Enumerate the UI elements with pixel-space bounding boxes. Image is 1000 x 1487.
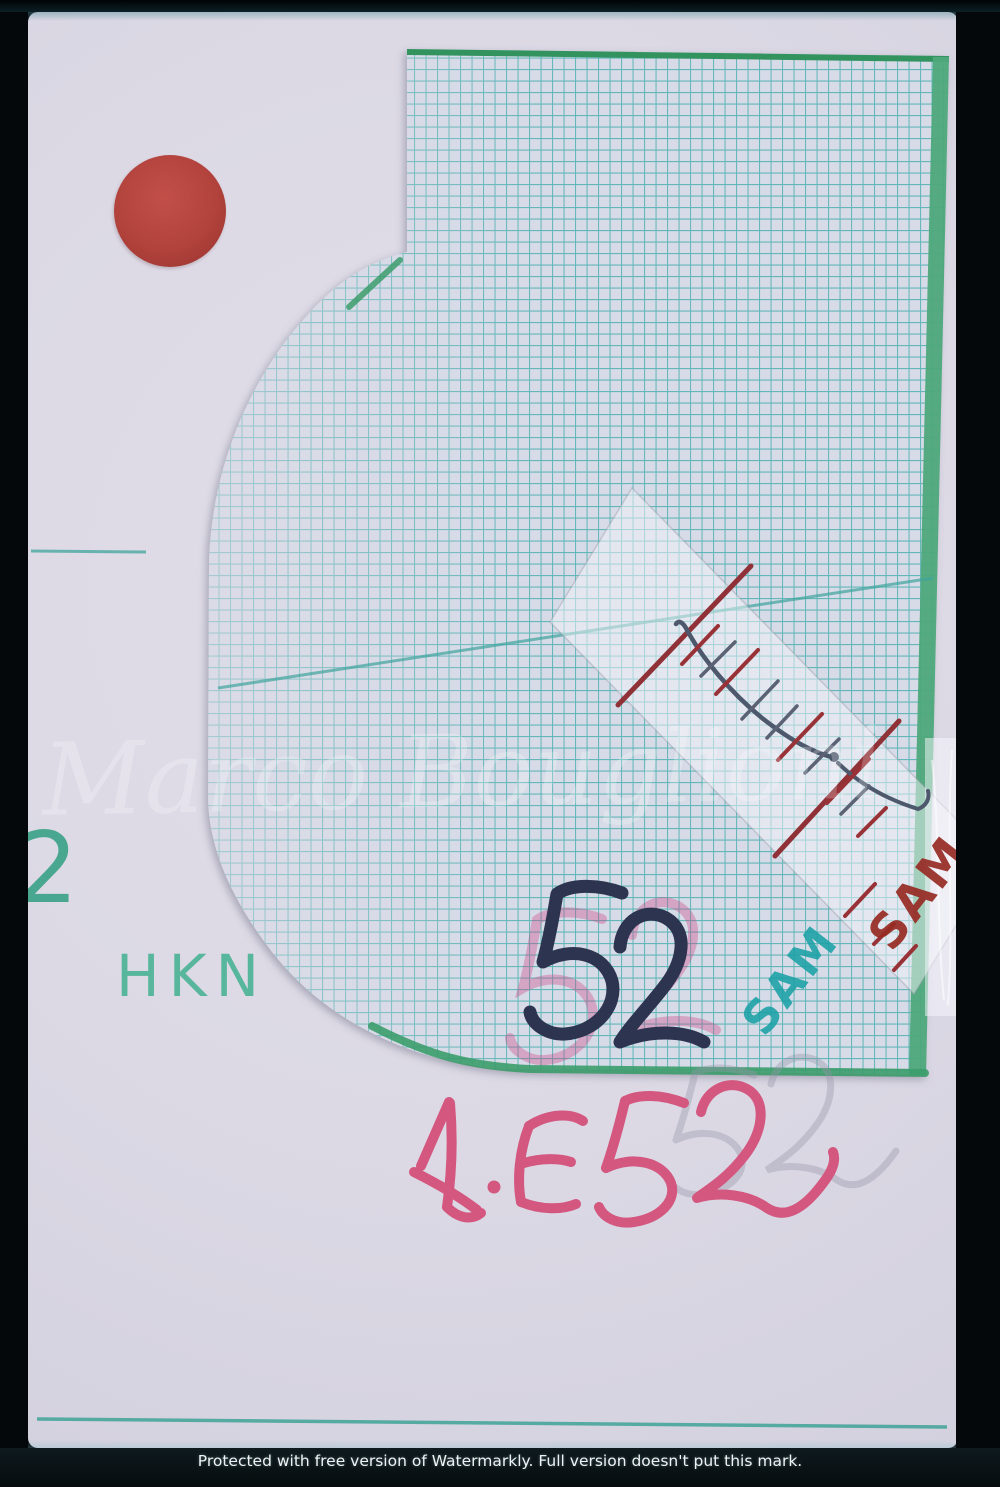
slide-frame-top: [0, 0, 1000, 12]
slide-frame-left: [0, 0, 28, 1487]
slide-frame-right: [956, 0, 1000, 1487]
slide-photo: 2 HKN SAM SAM Marco Bouglioni Protected …: [0, 0, 1000, 1487]
brand-label: HKN: [116, 942, 268, 1010]
frame-glow-bottom: [28, 1440, 956, 1448]
frame-glow-top: [28, 12, 956, 21]
watermark-text: Marco Bouglioni: [41, 702, 983, 839]
watermark-footer-bar: Protected with free version of Watermark…: [0, 1449, 1000, 1487]
red-dot-sticker: [114, 155, 226, 267]
watermark-footer-text: Protected with free version of Watermark…: [198, 1452, 803, 1470]
